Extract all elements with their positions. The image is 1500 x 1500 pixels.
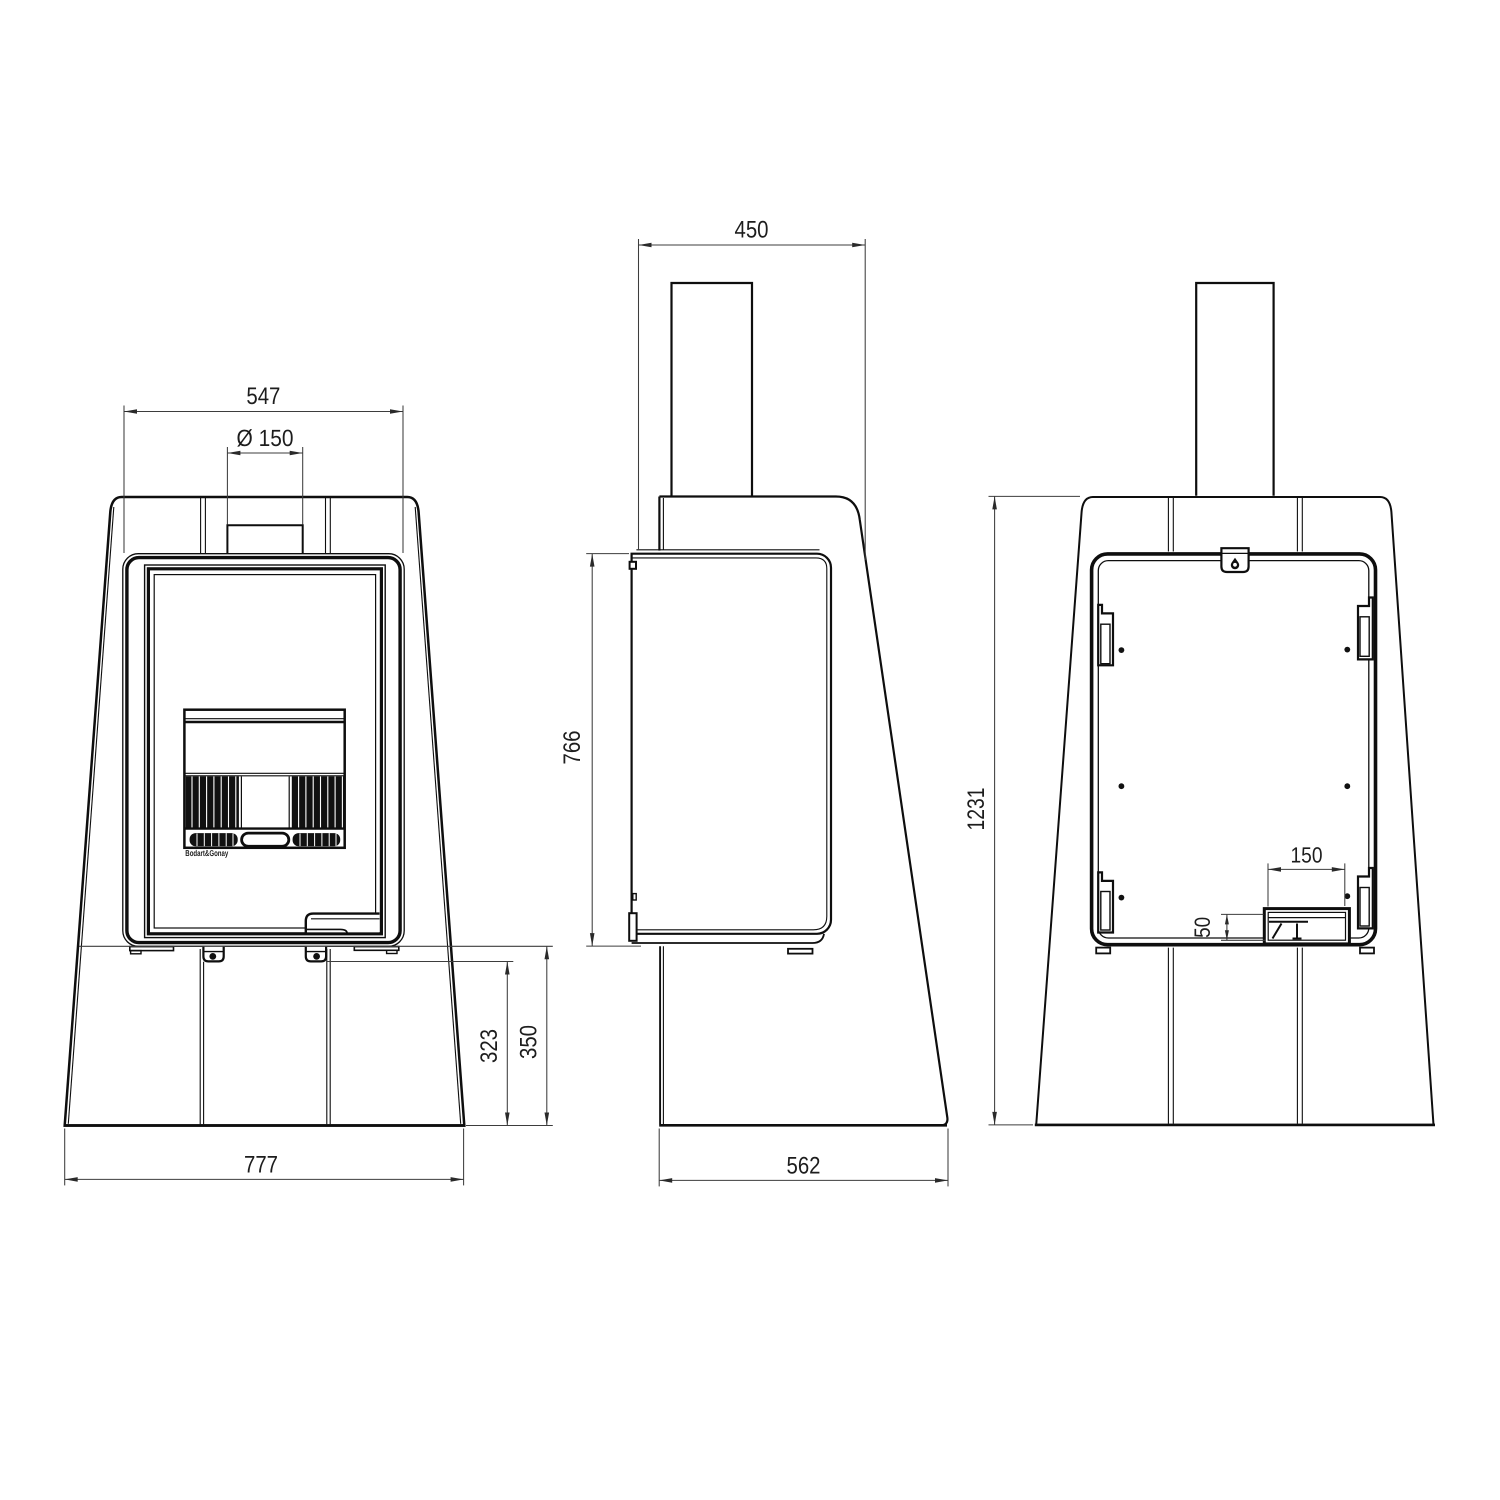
- svg-text:Ø 150: Ø 150: [236, 425, 293, 451]
- svg-text:1231: 1231: [963, 788, 990, 831]
- svg-text:150: 150: [1290, 842, 1322, 867]
- svg-text:562: 562: [786, 1152, 820, 1179]
- svg-text:450: 450: [734, 216, 768, 243]
- svg-text:50: 50: [1190, 917, 1215, 938]
- svg-text:777: 777: [244, 1151, 278, 1178]
- svg-text:350: 350: [516, 1025, 543, 1059]
- svg-text:766: 766: [559, 731, 586, 765]
- svg-text:547: 547: [246, 383, 280, 410]
- svg-text:Bodart&Gonay: Bodart&Gonay: [185, 848, 228, 858]
- svg-text:323: 323: [476, 1029, 503, 1063]
